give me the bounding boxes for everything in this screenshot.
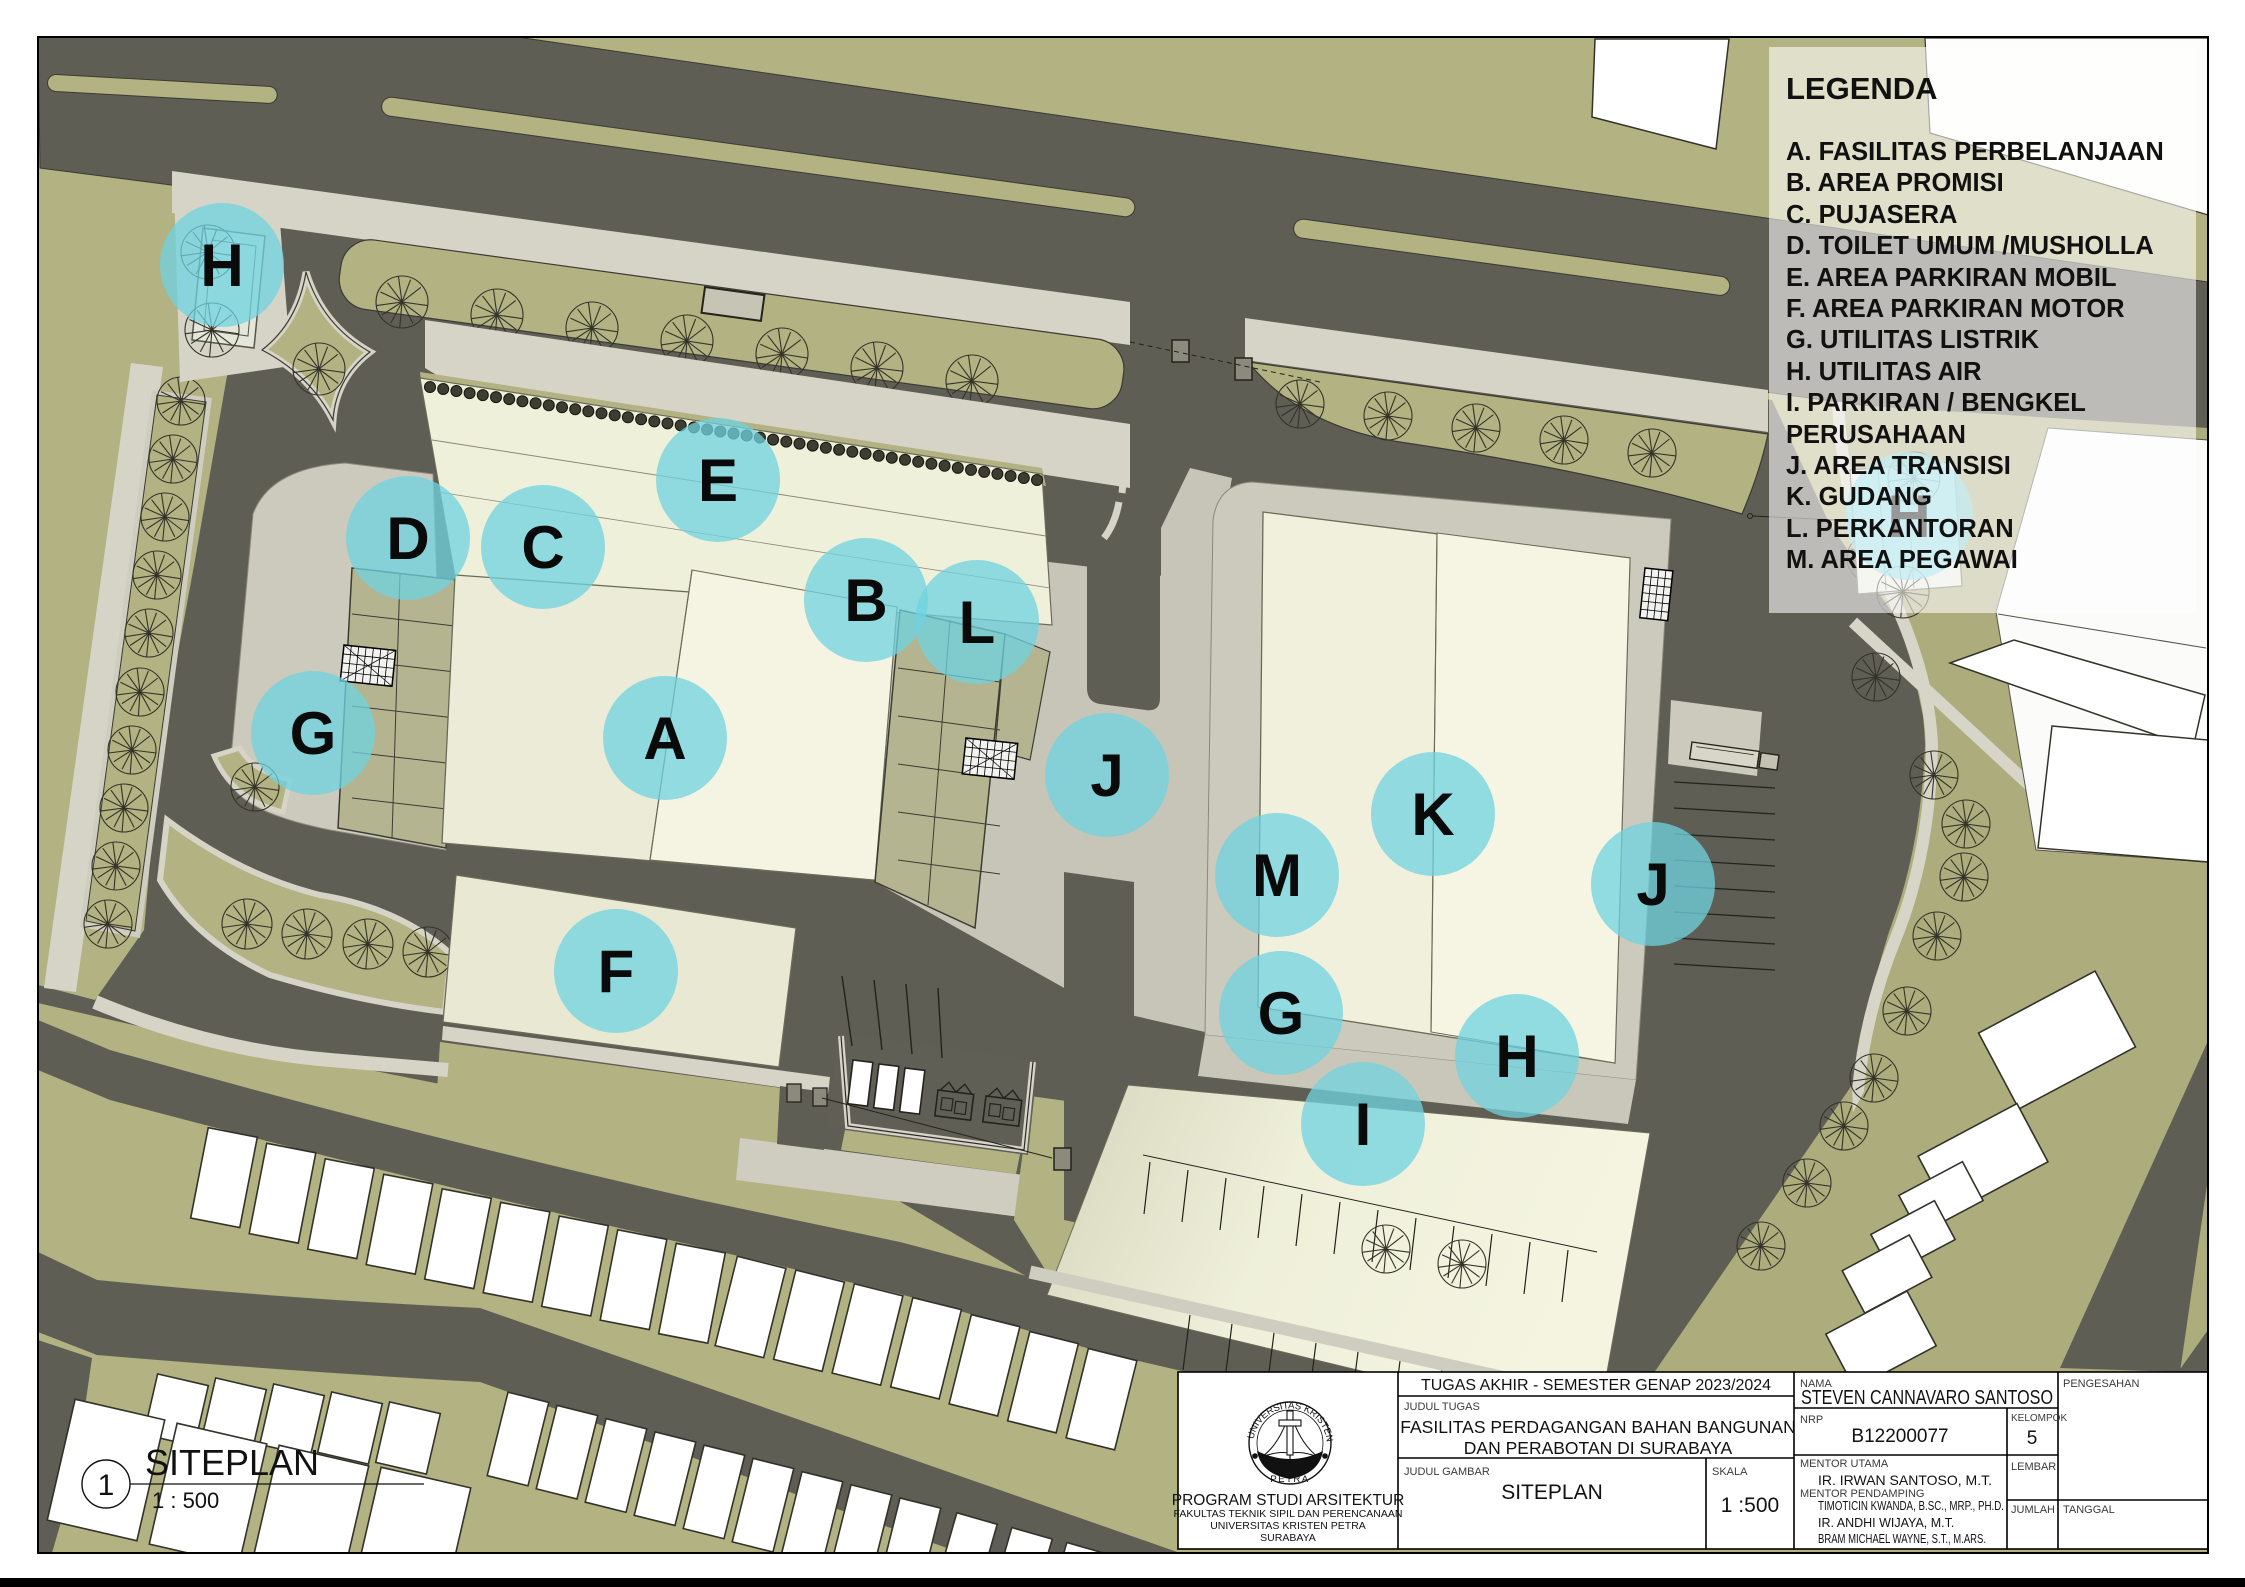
svg-text:H: H [200,232,243,299]
svg-text:E: E [698,447,738,514]
svg-text:BRAM MICHAEL WAYNE, S.T., M.AR: BRAM MICHAEL WAYNE, S.T., M.ARS. [1818,1532,1986,1546]
svg-text:I. PARKIRAN / BENGKEL: I. PARKIRAN / BENGKEL [1786,389,2086,417]
svg-text:A. FASILITAS PERBELANJAAN: A. FASILITAS PERBELANJAAN [1786,138,2164,166]
svg-text:1: 1 [98,1469,115,1502]
svg-text:H. UTILITAS AIR: H. UTILITAS AIR [1786,358,1981,386]
svg-text:5: 5 [2027,1428,2038,1449]
svg-text:L. PERKANTORAN: L. PERKANTORAN [1786,515,2014,543]
svg-text:PETRA: PETRA [1270,1474,1309,1485]
svg-text:M: M [1252,842,1302,909]
svg-text:K: K [1411,781,1454,848]
svg-text:C. PUJASERA: C. PUJASERA [1786,201,1957,229]
svg-text:J: J [1090,742,1123,809]
svg-text:SITEPLAN: SITEPLAN [1501,1481,1603,1504]
svg-text:FAKULTAS TEKNIK SIPIL DAN PERE: FAKULTAS TEKNIK SIPIL DAN PERENCANAAN [1174,1508,1403,1520]
svg-text:A: A [643,705,686,772]
svg-text:STEVEN CANNAVARO SANTOSO: STEVEN CANNAVARO SANTOSO [1801,1387,2053,1409]
svg-text:1 :500: 1 :500 [1721,1494,1779,1517]
svg-text:D: D [386,505,429,572]
svg-text:F. AREA PARKIRAN MOTOR: F. AREA PARKIRAN MOTOR [1786,295,2125,323]
svg-text:PROGRAM STUDI ARSITEKTUR: PROGRAM STUDI ARSITEKTUR [1172,1492,1405,1509]
svg-text:LEMBAR: LEMBAR [2011,1461,2056,1473]
svg-text:JUMLAH: JUMLAH [2011,1504,2055,1516]
svg-text:G: G [290,700,337,767]
svg-text:M. AREA PEGAWAI: M. AREA PEGAWAI [1786,546,2018,574]
svg-text:I: I [1355,1091,1372,1158]
svg-text:FASILITAS PERDAGANGAN BAHAN BA: FASILITAS PERDAGANGAN BAHAN BANGUNAN [1400,1417,1795,1437]
svg-text:LEGENDA: LEGENDA [1786,71,1938,106]
svg-text:G. UTILITAS LISTRIK: G. UTILITAS LISTRIK [1786,326,2040,354]
svg-text:PENGESAHAN: PENGESAHAN [2063,1378,2139,1390]
svg-text:JUDUL TUGAS: JUDUL TUGAS [1404,1401,1480,1413]
svg-text:SURABAYA: SURABAYA [1260,1532,1316,1544]
svg-text:H: H [1495,1023,1538,1090]
svg-text:IR. IRWAN SANTOSO, M.T.: IR. IRWAN SANTOSO, M.T. [1818,1472,1992,1488]
svg-text:J. AREA TRANSISI: J. AREA TRANSISI [1786,452,2011,480]
svg-text:SITEPLAN: SITEPLAN [145,1442,319,1483]
svg-text:1 : 500: 1 : 500 [152,1488,219,1513]
svg-text:SKALA: SKALA [1712,1466,1748,1478]
svg-text:G: G [1258,980,1305,1047]
svg-text:K. GUDANG: K. GUDANG [1786,483,1932,511]
svg-text:TUGAS AKHIR - SEMESTER GENAP 2: TUGAS AKHIR - SEMESTER GENAP 2023/2024 [1421,1377,1771,1394]
svg-text:F: F [598,938,635,1005]
svg-text:J: J [1636,851,1669,918]
svg-text:B12200077: B12200077 [1851,1426,1948,1447]
svg-text:MENTOR UTAMA: MENTOR UTAMA [1800,1458,1889,1470]
svg-text:NRP: NRP [1800,1414,1823,1426]
svg-text:UNIVERSITAS KRISTEN PETRA: UNIVERSITAS KRISTEN PETRA [1210,1520,1366,1532]
svg-text:E. AREA PARKIRAN MOBIL: E. AREA PARKIRAN MOBIL [1786,264,2117,292]
svg-text:KELOMPOK: KELOMPOK [2011,1413,2067,1424]
svg-text:B. AREA PROMISI: B. AREA PROMISI [1786,169,2004,197]
svg-text:JUDUL GAMBAR: JUDUL GAMBAR [1404,1466,1490,1478]
svg-text:DAN PERABOTAN DI SURABAYA: DAN PERABOTAN DI SURABAYA [1464,1438,1733,1458]
svg-text:IR. ANDHI WIJAYA, M.T.: IR. ANDHI WIJAYA, M.T. [1818,1516,1954,1530]
svg-text:C: C [521,514,564,581]
svg-text:B: B [844,567,887,634]
svg-text:TIMOTICIN KWANDA, B.SC., MRP.,: TIMOTICIN KWANDA, B.SC., MRP., PH.D. [1818,1499,2004,1513]
svg-text:D. TOILET UMUM /MUSHOLLA: D. TOILET UMUM /MUSHOLLA [1786,232,2154,260]
svg-text:L: L [959,589,996,656]
svg-text:PERUSAHAAN: PERUSAHAAN [1786,421,1966,449]
svg-text:TANGGAL: TANGGAL [2063,1504,2115,1516]
